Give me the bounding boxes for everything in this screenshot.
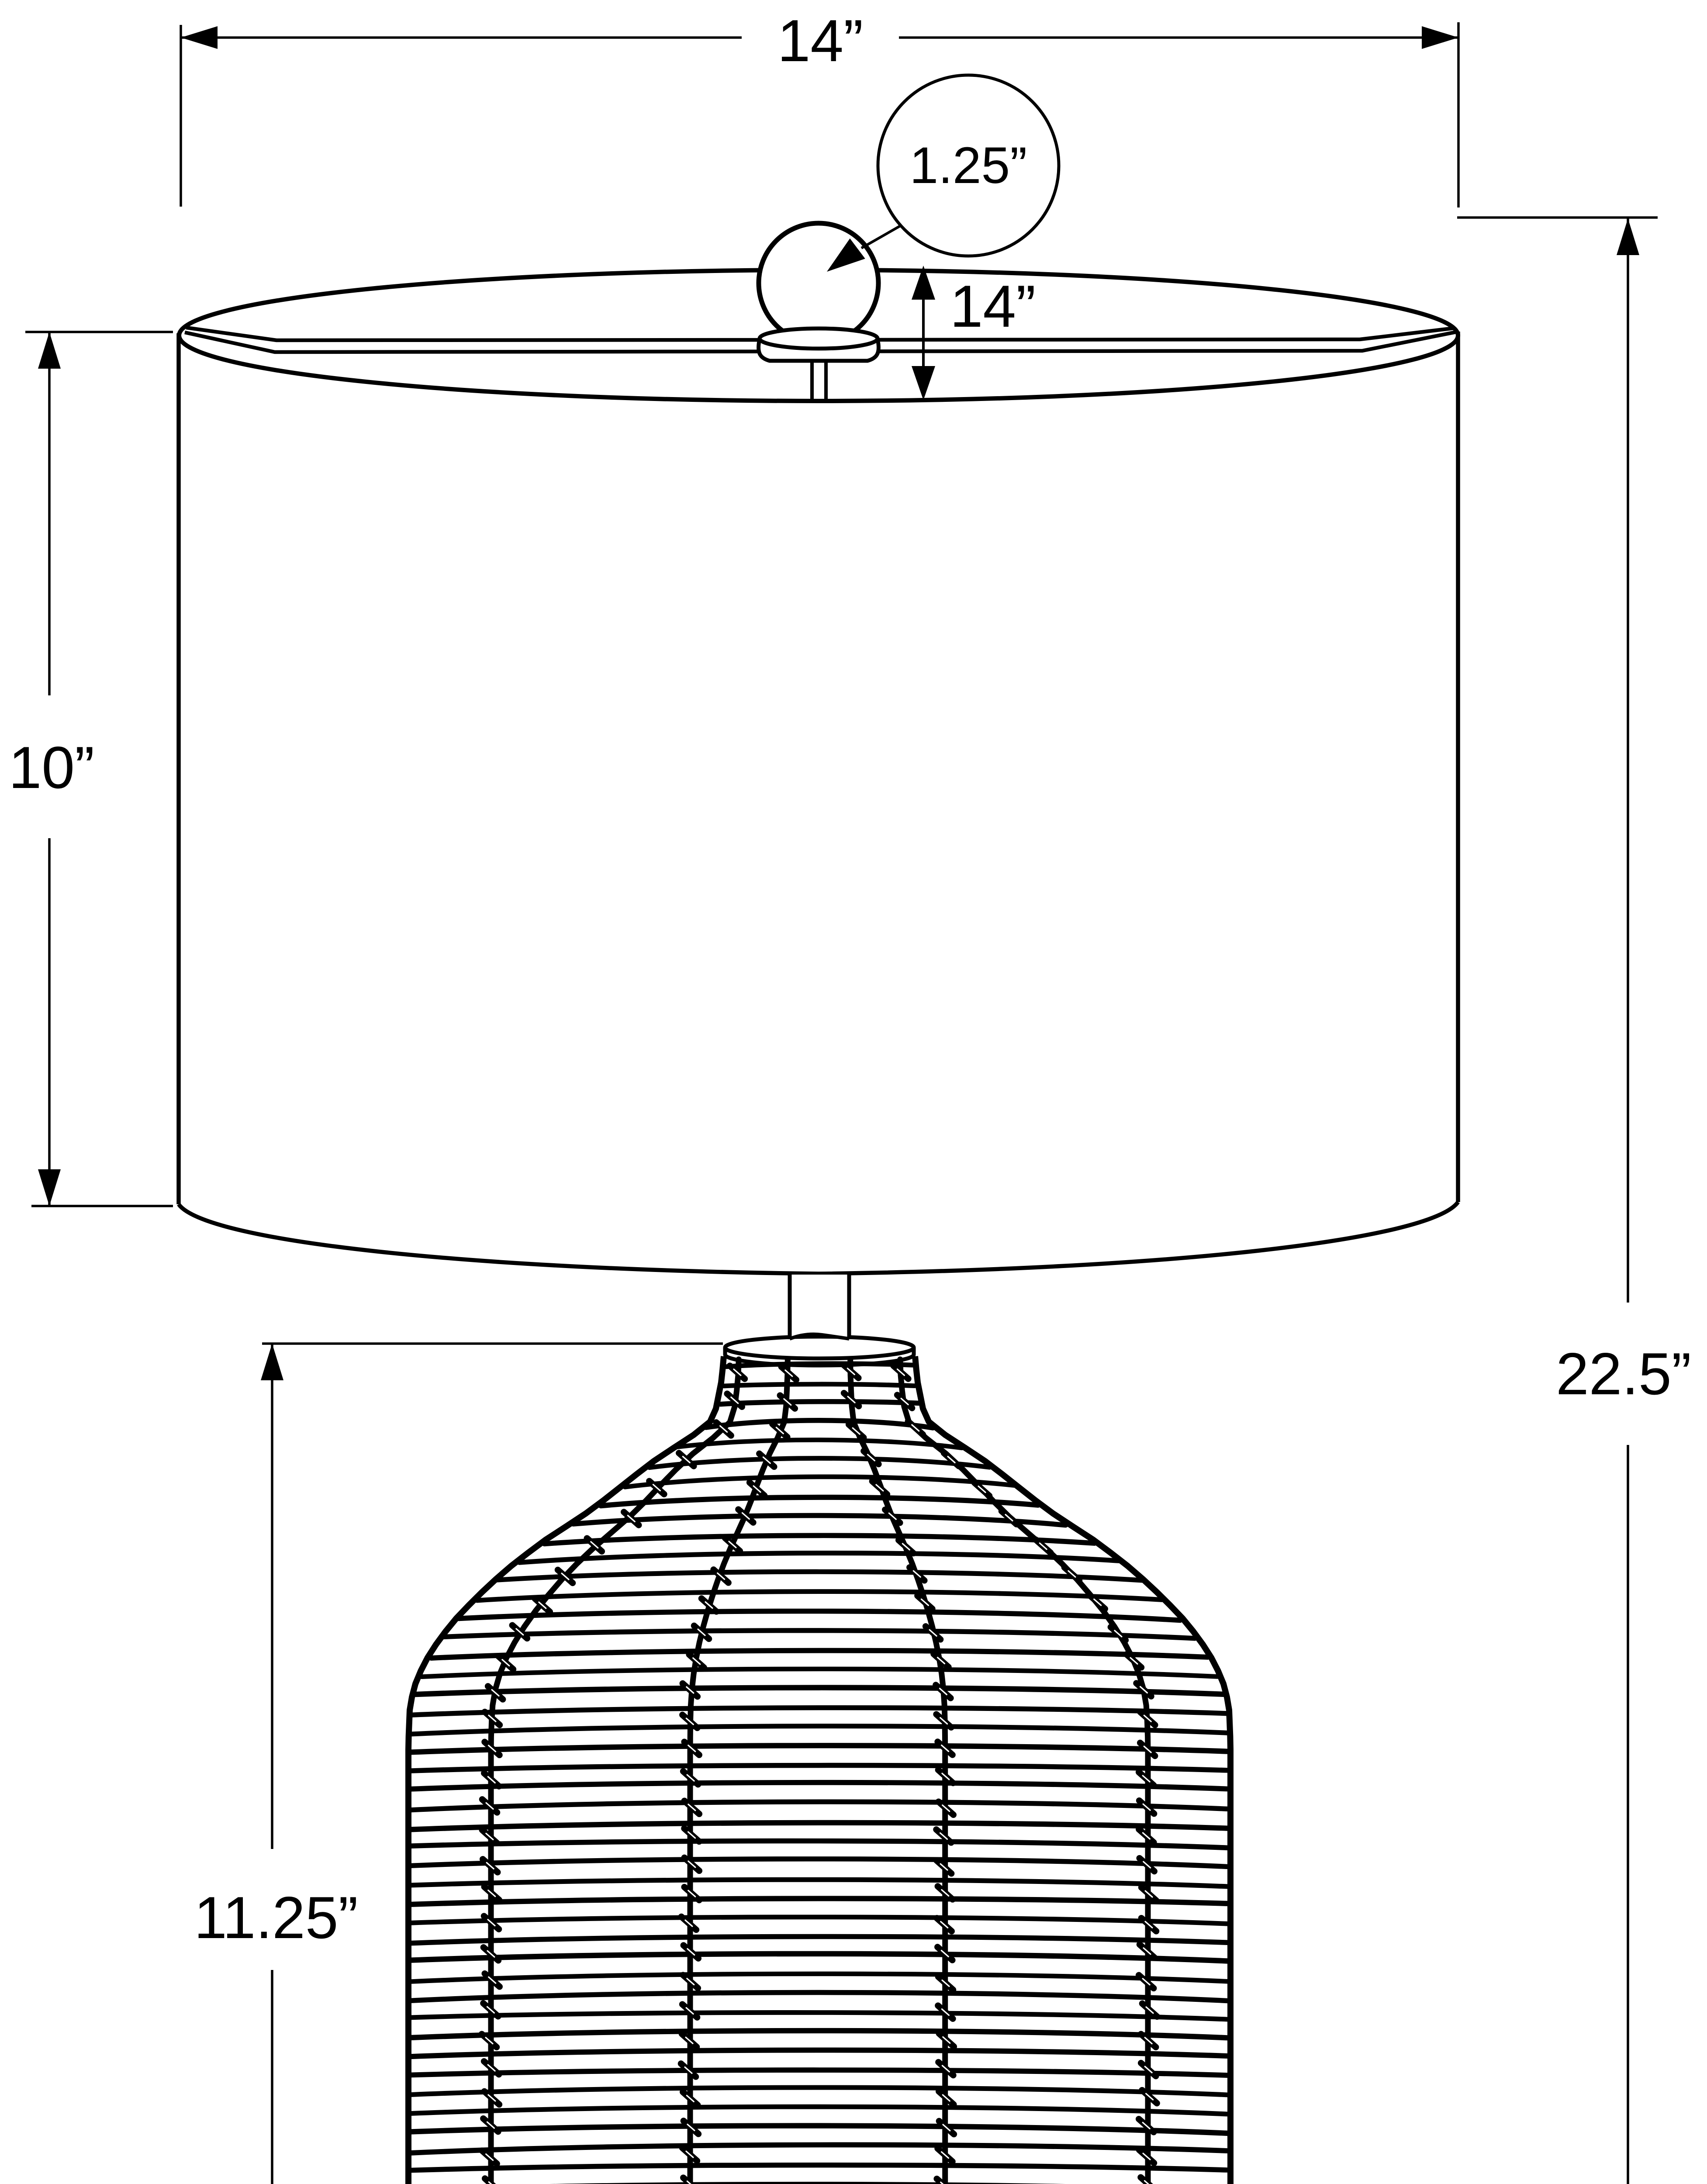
svg-text:10”: 10”: [9, 734, 95, 801]
svg-text:22.5”: 22.5”: [1556, 1341, 1691, 1407]
svg-text:14”: 14”: [777, 7, 864, 74]
svg-text:1.25”: 1.25”: [910, 137, 1027, 194]
svg-text:14”: 14”: [950, 273, 1036, 339]
svg-text:11.25”: 11.25”: [194, 1884, 358, 1951]
